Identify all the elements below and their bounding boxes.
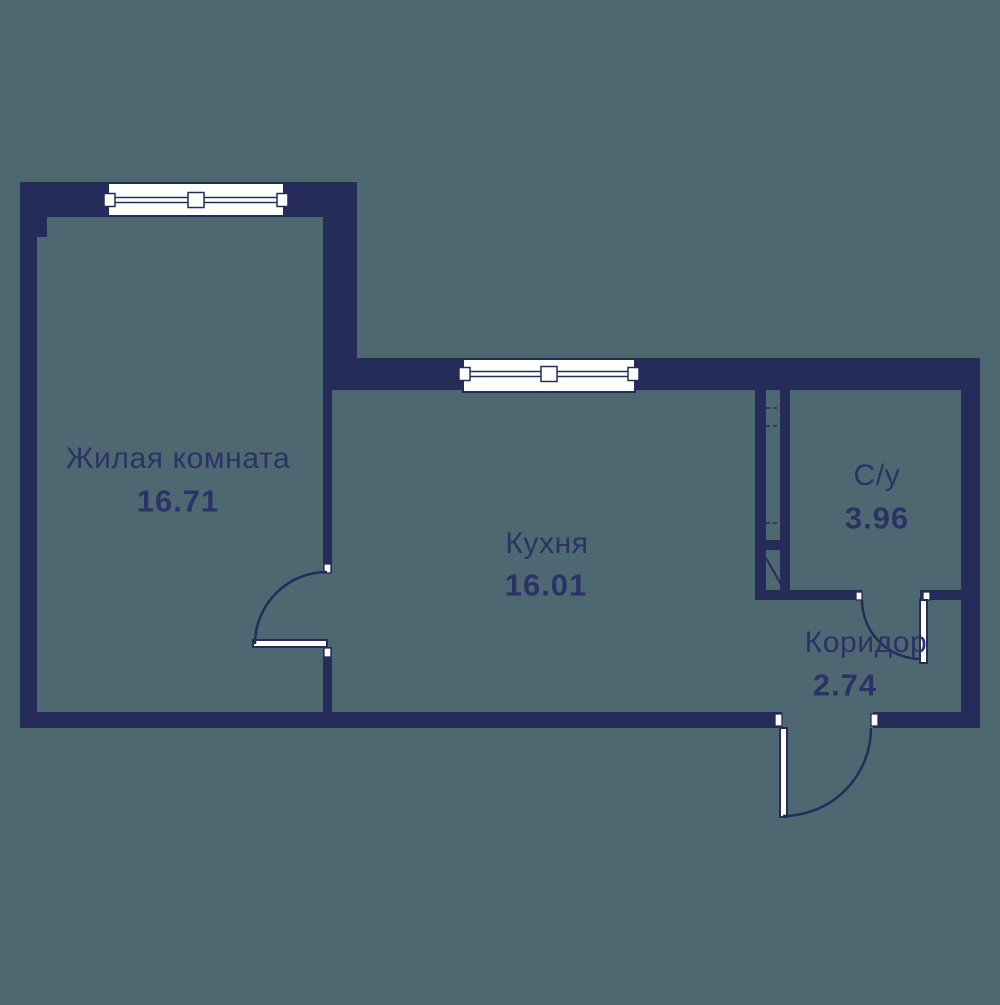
room-label-kitchen-name: Кухня bbox=[505, 529, 588, 559]
wall-bottom-left bbox=[20, 712, 782, 728]
window-kitchen-cap bbox=[459, 368, 470, 381]
door-swing-living bbox=[255, 572, 327, 644]
room-label-kitchen-area: 16.01 bbox=[505, 570, 588, 601]
window-living-cap bbox=[104, 194, 115, 207]
room-label-corridor-name: Коридор bbox=[805, 628, 928, 658]
door-swing-entrance bbox=[783, 728, 871, 816]
wall-right bbox=[961, 390, 980, 728]
wall-shaft-right bbox=[780, 390, 790, 600]
wall-living-left-step bbox=[37, 217, 47, 237]
room-label-bath-area: 3.96 bbox=[845, 503, 909, 534]
wall-bath-bottom-left bbox=[755, 590, 862, 600]
window-kitchen bbox=[459, 359, 639, 392]
jamb-bath-right bbox=[923, 592, 930, 600]
jamb-bath-left bbox=[856, 592, 862, 600]
window-kitchen-cap bbox=[541, 367, 557, 382]
wall-divider-upper bbox=[323, 390, 332, 573]
window-kitchen-cap bbox=[628, 368, 639, 381]
door-leaf-entrance bbox=[780, 728, 787, 817]
room-label-living-area: 16.71 bbox=[137, 486, 220, 517]
floorplan-canvas: Жилая комната 16.71 Кухня 16.01 С/у 3.96… bbox=[0, 0, 1000, 1000]
window-living bbox=[104, 183, 288, 216]
wall-living-left bbox=[20, 182, 37, 728]
door-leaf-living bbox=[253, 640, 327, 647]
jamb-entrance-right bbox=[871, 714, 878, 726]
wall-kitchen-top bbox=[323, 358, 980, 390]
wall-shaft-left bbox=[755, 390, 766, 600]
jamb-entrance-left bbox=[775, 714, 782, 726]
room-label-living-name: Жилая комната bbox=[66, 444, 290, 474]
room-label-corridor-area: 2.74 bbox=[813, 670, 877, 701]
room-label-bath-name: С/у bbox=[854, 461, 901, 491]
window-living-cap bbox=[277, 194, 288, 207]
wall-shaft-bridge bbox=[755, 540, 790, 550]
jamb-living-door-bottom bbox=[324, 648, 331, 657]
window-living-cap bbox=[188, 193, 204, 208]
